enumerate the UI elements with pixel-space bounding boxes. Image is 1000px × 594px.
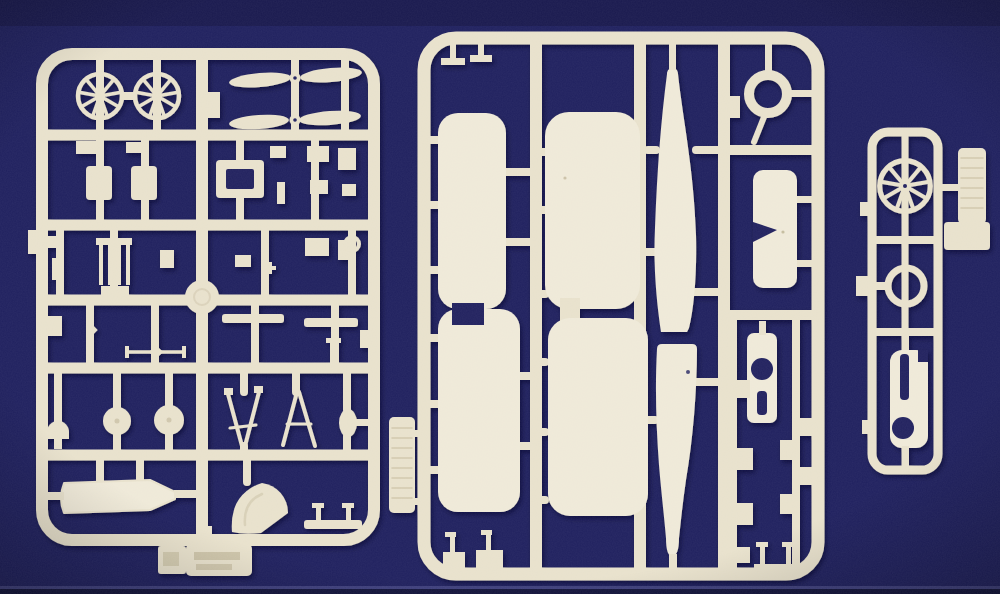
photo-canvas <box>0 0 1000 594</box>
sprue-photo <box>0 0 1000 594</box>
grain-overlay <box>0 0 1000 594</box>
